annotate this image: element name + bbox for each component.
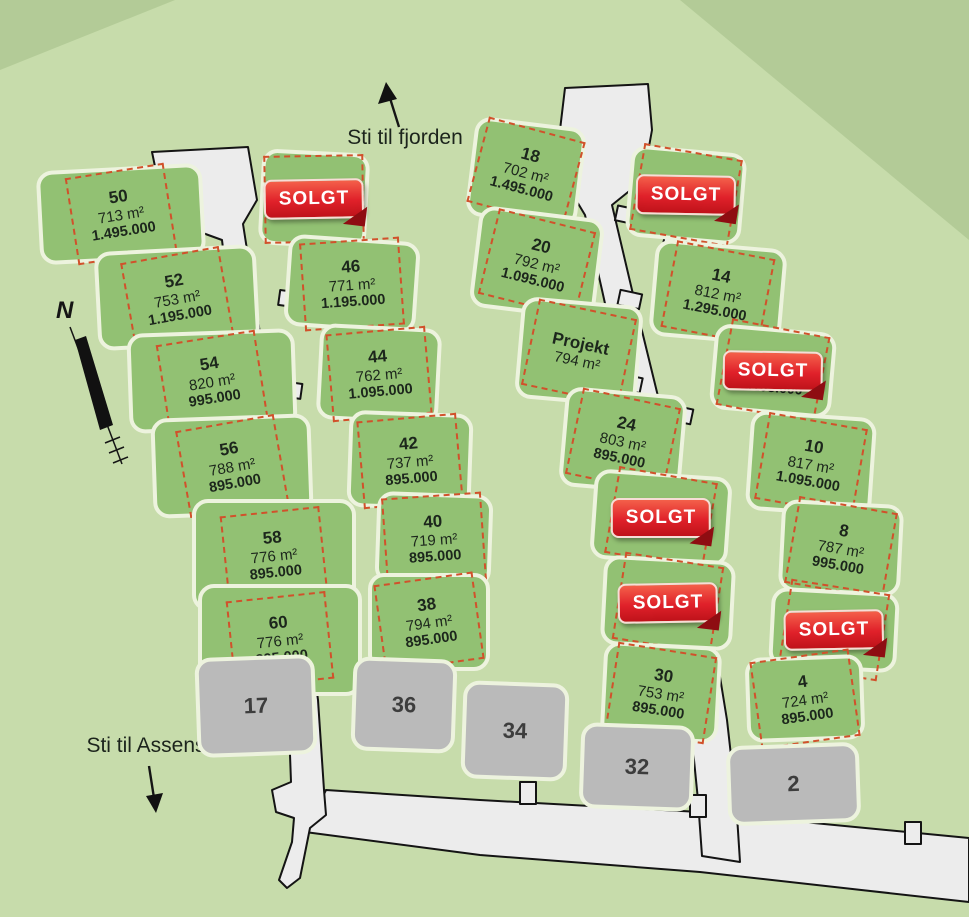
plot-number: 17 [243, 693, 268, 720]
plot-number: 46 [341, 257, 361, 278]
solgt-badge: SOLGT [783, 609, 884, 651]
plot-sold[interactable]: 1.195.000SOLGT [708, 323, 837, 419]
plot-46[interactable]: 46771 m²1.195.000 [283, 234, 421, 335]
plot-44[interactable]: 44762 m²1.095.000 [316, 323, 443, 425]
plot-dashed-outline: 44762 m²1.095.000 [325, 326, 432, 422]
plot-number: 52 [163, 270, 185, 293]
plot-number: 34 [502, 718, 527, 745]
plot-17[interactable]: 17 [194, 654, 317, 758]
plot-number: 30 [653, 665, 675, 687]
plots-layer: 50713 m²1.495.00052753 m²1.195.00054820 … [0, 0, 969, 917]
plot-number: 44 [367, 347, 388, 368]
solgt-badge: SOLGT [722, 350, 823, 392]
plot-number: 42 [398, 433, 419, 454]
solgt-badge: SOLGT [611, 498, 711, 538]
plot-2[interactable]: 2 [726, 742, 862, 827]
plot-sold[interactable]: SOLGT [624, 144, 748, 246]
plot-number: 32 [624, 754, 649, 781]
plot-price: 895.000 [409, 547, 462, 567]
plot-38[interactable]: 38794 m²895.000 [368, 573, 490, 671]
plot-sold[interactable]: SOLGT [600, 555, 737, 652]
plot-number: 40 [423, 512, 443, 533]
plot-price: 1.195.000 [321, 292, 387, 313]
plot-sold[interactable]: SOLGT [589, 468, 733, 567]
plot-4[interactable]: 4724 m²895.000 [745, 654, 866, 743]
plot-dashed-outline: 4724 m²895.000 [749, 648, 860, 749]
plot-dashed-outline: 46771 m²1.195.000 [299, 237, 405, 332]
plot-number: 2 [787, 771, 800, 797]
plot-number: 36 [391, 692, 416, 719]
solgt-badge: SOLGT [617, 582, 718, 624]
plot-36[interactable]: 36 [350, 656, 457, 754]
solgt-badge: SOLGT [635, 174, 736, 216]
plot-34[interactable]: 34 [460, 680, 569, 782]
plot-map: N Sti til fjorden Sti til Assens 50713 m… [0, 0, 969, 917]
plot-32[interactable]: 32 [579, 722, 696, 812]
plot-number: 60 [268, 612, 289, 633]
plot-number: 8 [838, 521, 851, 542]
solgt-badge: SOLGT [263, 178, 364, 220]
plot-number: 58 [262, 527, 283, 548]
plot-number: 4 [797, 671, 809, 692]
